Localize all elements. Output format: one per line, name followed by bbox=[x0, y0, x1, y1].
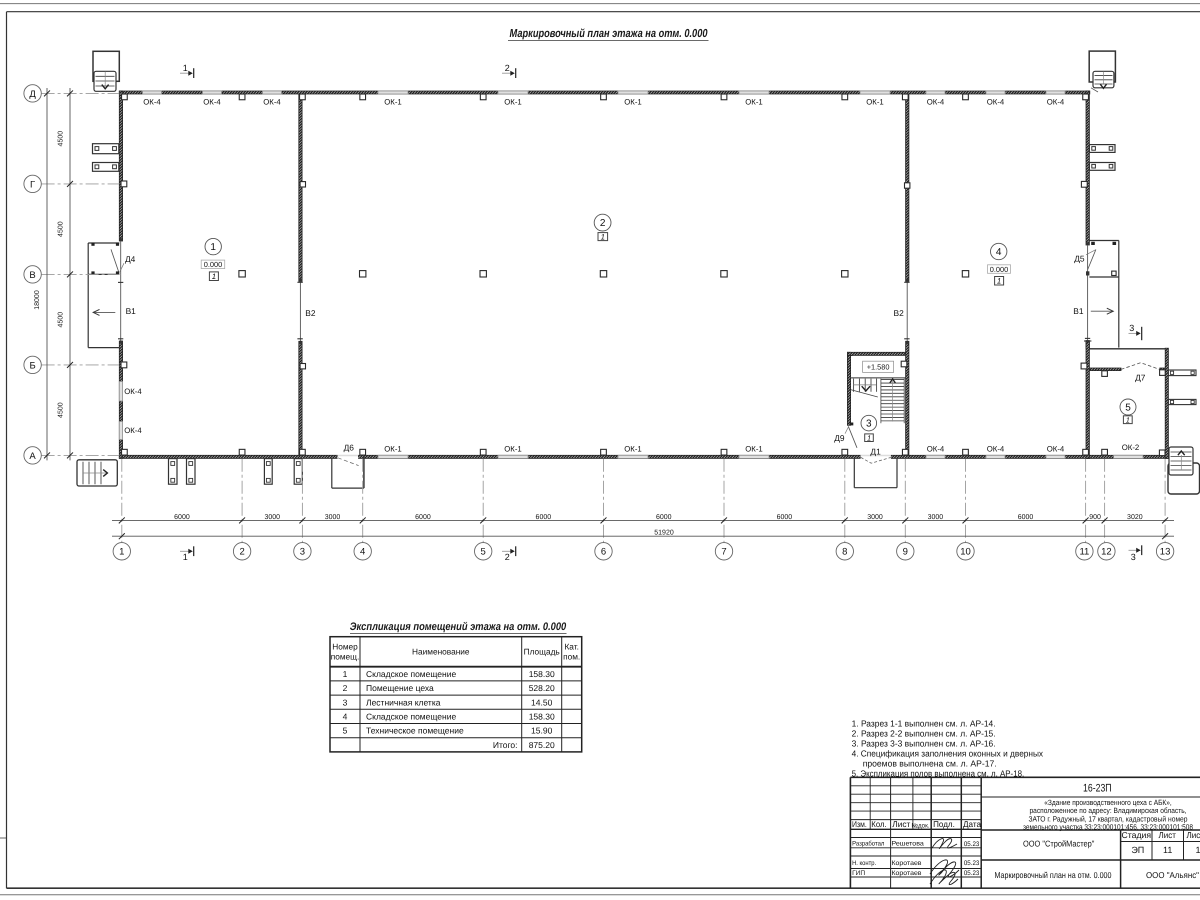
svg-text:ОК-1: ОК-1 bbox=[624, 444, 642, 453]
svg-text:Лист: Лист bbox=[1159, 830, 1176, 840]
svg-text:Маркировочный план на отм. 0.0: Маркировочный план на отм. 0.000 bbox=[995, 870, 1112, 880]
svg-text:900: 900 bbox=[1089, 514, 1101, 521]
svg-text:12: 12 bbox=[1195, 845, 1200, 855]
svg-text:05.23: 05.23 bbox=[964, 841, 980, 848]
svg-text:6000: 6000 bbox=[1018, 514, 1034, 521]
svg-text:6000: 6000 bbox=[777, 514, 793, 521]
svg-text:Д5: Д5 bbox=[1074, 254, 1085, 264]
svg-text:5: 5 bbox=[1125, 403, 1131, 414]
svg-text:ОК-4: ОК-4 bbox=[927, 444, 945, 453]
svg-text:Коротаев: Коротаев bbox=[892, 870, 923, 877]
svg-text:ОК-4: ОК-4 bbox=[203, 98, 221, 107]
svg-text:1: 1 bbox=[210, 242, 216, 253]
svg-text:6000: 6000 bbox=[536, 514, 552, 521]
svg-text:ООО "СтройМастер": ООО "СтройМастер" bbox=[1023, 839, 1095, 849]
svg-text:В1: В1 bbox=[126, 306, 137, 316]
svg-text:Б: Б bbox=[29, 360, 35, 371]
svg-text:1: 1 bbox=[183, 63, 188, 73]
svg-text:1: 1 bbox=[119, 547, 124, 558]
svg-text:0.000: 0.000 bbox=[204, 260, 223, 269]
svg-text:10: 10 bbox=[960, 547, 971, 558]
svg-text:помещ.: помещ. bbox=[331, 652, 360, 662]
svg-text:2: 2 bbox=[239, 547, 244, 558]
svg-text:18000: 18000 bbox=[34, 290, 41, 310]
svg-text:14.50: 14.50 bbox=[531, 697, 553, 707]
svg-text:Дата: Дата bbox=[963, 819, 981, 829]
svg-text:ОК-1: ОК-1 bbox=[384, 98, 402, 107]
svg-text:В2: В2 bbox=[894, 308, 905, 318]
svg-text:А: А bbox=[29, 451, 36, 462]
svg-text:В1: В1 bbox=[1073, 306, 1084, 316]
svg-text:ОК-1: ОК-1 bbox=[504, 444, 522, 453]
svg-text:Изм.: Изм. bbox=[852, 819, 867, 829]
svg-text:Техническое помещение: Техническое помещение bbox=[366, 726, 464, 736]
svg-text:05.23: 05.23 bbox=[964, 860, 980, 867]
svg-text:пом.: пом. bbox=[563, 652, 580, 662]
svg-text:7: 7 bbox=[721, 547, 726, 558]
svg-text:3: 3 bbox=[1129, 323, 1134, 333]
svg-text:6000: 6000 bbox=[415, 514, 431, 521]
svg-text:528.20: 528.20 bbox=[529, 683, 555, 693]
svg-text:4: 4 bbox=[360, 547, 365, 558]
svg-text:4: 4 bbox=[343, 712, 348, 722]
svg-text:2. Разрез 2-2 выполнен см. л.: 2. Разрез 2-2 выполнен см. л. АР-15. bbox=[852, 729, 996, 739]
svg-text:4500: 4500 bbox=[58, 221, 65, 237]
svg-text:Д1: Д1 bbox=[870, 446, 881, 456]
svg-text:ОК-1: ОК-1 bbox=[745, 98, 763, 107]
svg-text:1: 1 bbox=[1126, 415, 1130, 424]
svg-text:3: 3 bbox=[866, 419, 872, 430]
svg-text:ОК-4: ОК-4 bbox=[927, 98, 945, 107]
svg-text:ОК-1: ОК-1 bbox=[384, 444, 402, 453]
svg-text:6000: 6000 bbox=[174, 514, 190, 521]
svg-text:Кол.: Кол. bbox=[871, 819, 886, 829]
svg-text:ОК-4: ОК-4 bbox=[143, 98, 161, 107]
svg-text:Складское помещение: Складское помещение bbox=[366, 712, 456, 722]
svg-text:4. Спецификация заполнения око: 4. Спецификация заполнения оконных и две… bbox=[852, 749, 1044, 759]
svg-text:В: В bbox=[29, 270, 35, 281]
svg-text:Листов: Листов bbox=[1187, 830, 1200, 840]
svg-text:ГИП: ГИП bbox=[852, 870, 865, 877]
svg-text:ОК-4: ОК-4 bbox=[1047, 98, 1065, 107]
svg-text:Разработал: Разработал bbox=[852, 841, 884, 848]
svg-text:2: 2 bbox=[505, 63, 510, 73]
svg-text:3: 3 bbox=[300, 547, 305, 558]
svg-text:1: 1 bbox=[997, 277, 1001, 286]
svg-text:12: 12 bbox=[1101, 547, 1112, 558]
svg-text:Г: Г bbox=[30, 179, 35, 190]
svg-text:ОК-1: ОК-1 bbox=[504, 98, 522, 107]
svg-text:Лист: Лист bbox=[892, 819, 910, 829]
svg-text:Д: Д bbox=[29, 89, 36, 100]
svg-text:1: 1 bbox=[183, 552, 188, 562]
svg-text:Площадь: Площадь bbox=[524, 647, 560, 657]
svg-text:9: 9 bbox=[903, 547, 908, 558]
svg-text:ОК-4: ОК-4 bbox=[987, 98, 1005, 107]
svg-text:11: 11 bbox=[1079, 547, 1089, 558]
svg-text:Д6: Д6 bbox=[344, 442, 355, 452]
svg-text:Кат.: Кат. bbox=[564, 642, 578, 652]
svg-text:3: 3 bbox=[343, 697, 348, 707]
svg-text:ОК-1: ОК-1 bbox=[745, 444, 763, 453]
svg-text:3. Разрез 3-3 выполнен см. л.: 3. Разрез 3-3 выполнен см. л. АР-16. bbox=[852, 739, 996, 749]
svg-text:4: 4 bbox=[996, 247, 1002, 258]
svg-text:Стадия: Стадия bbox=[1122, 830, 1152, 840]
svg-text:Складское помещение: Складское помещение bbox=[366, 669, 456, 679]
svg-text:2: 2 bbox=[343, 683, 348, 693]
svg-text:ОК-1: ОК-1 bbox=[624, 98, 642, 107]
svg-text:158.30: 158.30 bbox=[529, 712, 555, 722]
svg-text:15.90: 15.90 bbox=[531, 726, 553, 736]
svg-text:ЭП: ЭП bbox=[1131, 845, 1144, 855]
svg-text:№док.: №док. bbox=[911, 822, 929, 829]
svg-text:1: 1 bbox=[867, 433, 871, 442]
svg-text:6000: 6000 bbox=[656, 514, 672, 521]
svg-text:Подл.: Подл. bbox=[933, 819, 955, 829]
svg-text:2: 2 bbox=[505, 552, 510, 562]
svg-text:13: 13 bbox=[1160, 547, 1171, 558]
svg-text:1: 1 bbox=[212, 272, 216, 281]
svg-text:1. Разрез 1-1 выполнен см. л.: 1. Разрез 1-1 выполнен см. л. АР-14. bbox=[852, 719, 996, 729]
svg-text:3000: 3000 bbox=[325, 514, 341, 521]
svg-text:3000: 3000 bbox=[867, 514, 883, 521]
svg-text:Маркировочный план этажа на от: Маркировочный план этажа на отм. 0.000 bbox=[510, 27, 708, 40]
svg-text:ОК-4: ОК-4 bbox=[987, 444, 1005, 453]
svg-text:ОК-4: ОК-4 bbox=[124, 387, 142, 396]
svg-text:1: 1 bbox=[601, 232, 605, 241]
svg-text:ООО "Альянс": ООО "Альянс" bbox=[1146, 870, 1199, 880]
svg-text:05.23: 05.23 bbox=[964, 870, 980, 877]
svg-text:875.20: 875.20 bbox=[529, 740, 555, 750]
svg-text:1: 1 bbox=[343, 669, 348, 679]
svg-text:ОК-2: ОК-2 bbox=[1122, 443, 1140, 452]
svg-text:Д4: Д4 bbox=[125, 254, 136, 264]
svg-text:3000: 3000 bbox=[928, 514, 944, 521]
svg-text:ОК-4: ОК-4 bbox=[263, 98, 281, 107]
svg-text:3020: 3020 bbox=[1127, 514, 1143, 521]
svg-text:Решетова: Решетова bbox=[892, 841, 925, 848]
svg-text:ОК-1: ОК-1 bbox=[866, 98, 884, 107]
svg-text:Лестничная клетка: Лестничная клетка bbox=[366, 697, 441, 707]
svg-text:Д7: Д7 bbox=[1135, 373, 1146, 383]
svg-text:8: 8 bbox=[842, 547, 847, 558]
svg-text:+1.580: +1.580 bbox=[867, 363, 890, 372]
svg-text:11: 11 bbox=[1163, 845, 1172, 855]
svg-text:Экспликация помещений этажа на: Экспликация помещений этажа на отм. 0.00… bbox=[350, 621, 567, 633]
svg-text:4500: 4500 bbox=[58, 131, 65, 147]
svg-text:2: 2 bbox=[600, 218, 606, 229]
svg-text:Коротаев: Коротаев bbox=[892, 860, 923, 867]
svg-text:Д9: Д9 bbox=[834, 433, 845, 443]
svg-text:Н. контр.: Н. контр. bbox=[852, 860, 876, 867]
svg-text:3: 3 bbox=[1131, 552, 1136, 562]
svg-text:Итого:: Итого: bbox=[493, 740, 518, 750]
svg-text:ОК-4: ОК-4 bbox=[124, 426, 142, 435]
svg-text:4500: 4500 bbox=[58, 402, 65, 418]
svg-text:51920: 51920 bbox=[654, 530, 674, 537]
svg-text:ОК-4: ОК-4 bbox=[1047, 444, 1065, 453]
svg-text:158.30: 158.30 bbox=[529, 669, 555, 679]
svg-text:5: 5 bbox=[481, 547, 486, 558]
svg-text:6: 6 bbox=[601, 547, 606, 558]
svg-text:В2: В2 bbox=[305, 308, 316, 318]
svg-text:Наименование: Наименование bbox=[412, 647, 470, 657]
svg-text:Помещение цеха: Помещение цеха bbox=[366, 683, 434, 693]
svg-text:5: 5 bbox=[343, 726, 348, 736]
svg-text:Номер: Номер bbox=[332, 642, 358, 652]
svg-text:3000: 3000 bbox=[264, 514, 280, 521]
svg-text:проемов выполнена см. л. АР-17: проемов выполнена см. л. АР-17. bbox=[863, 759, 997, 769]
svg-text:0.000: 0.000 bbox=[990, 265, 1009, 274]
svg-text:4500: 4500 bbox=[58, 312, 65, 328]
svg-text:16-23П: 16-23П bbox=[1083, 783, 1112, 795]
